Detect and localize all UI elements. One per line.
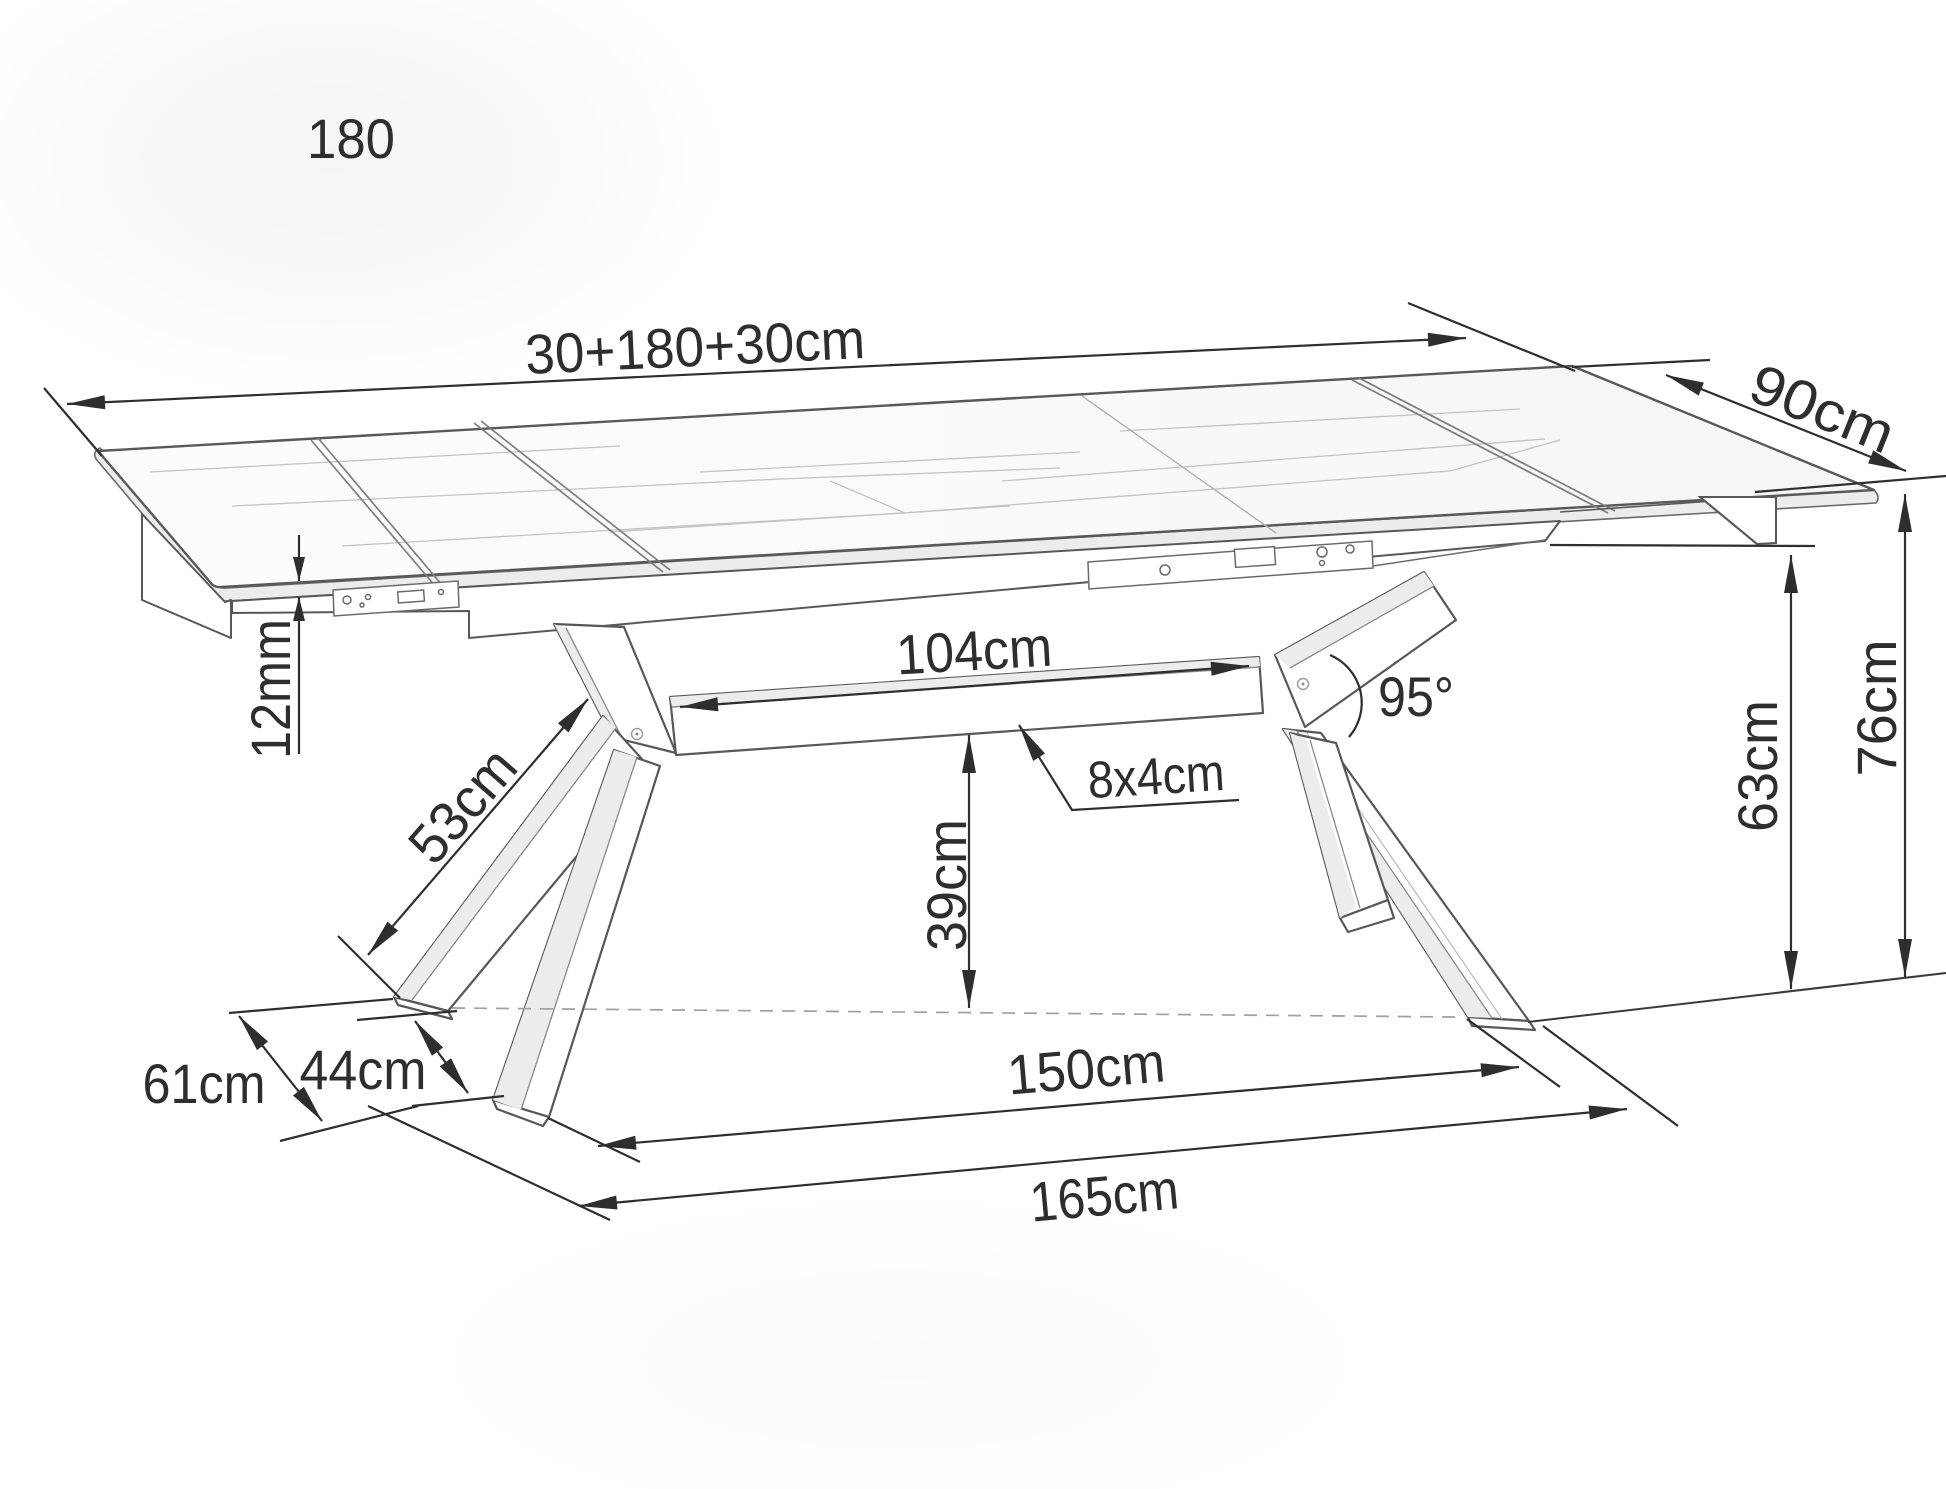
svg-text:76cm: 76cm [1845, 640, 1908, 777]
svg-text:44cm: 44cm [300, 1038, 427, 1101]
svg-text:63cm: 63cm [1726, 700, 1789, 832]
svg-text:95°: 95° [1378, 665, 1454, 728]
svg-text:39cm: 39cm [915, 819, 978, 951]
svg-text:61cm: 61cm [143, 1052, 266, 1115]
svg-text:180: 180 [307, 107, 395, 170]
svg-text:104cm: 104cm [894, 615, 1053, 687]
svg-text:8x4cm: 8x4cm [1086, 744, 1226, 810]
svg-text:12mm: 12mm [239, 619, 302, 759]
svg-text:150cm: 150cm [1005, 1030, 1168, 1106]
